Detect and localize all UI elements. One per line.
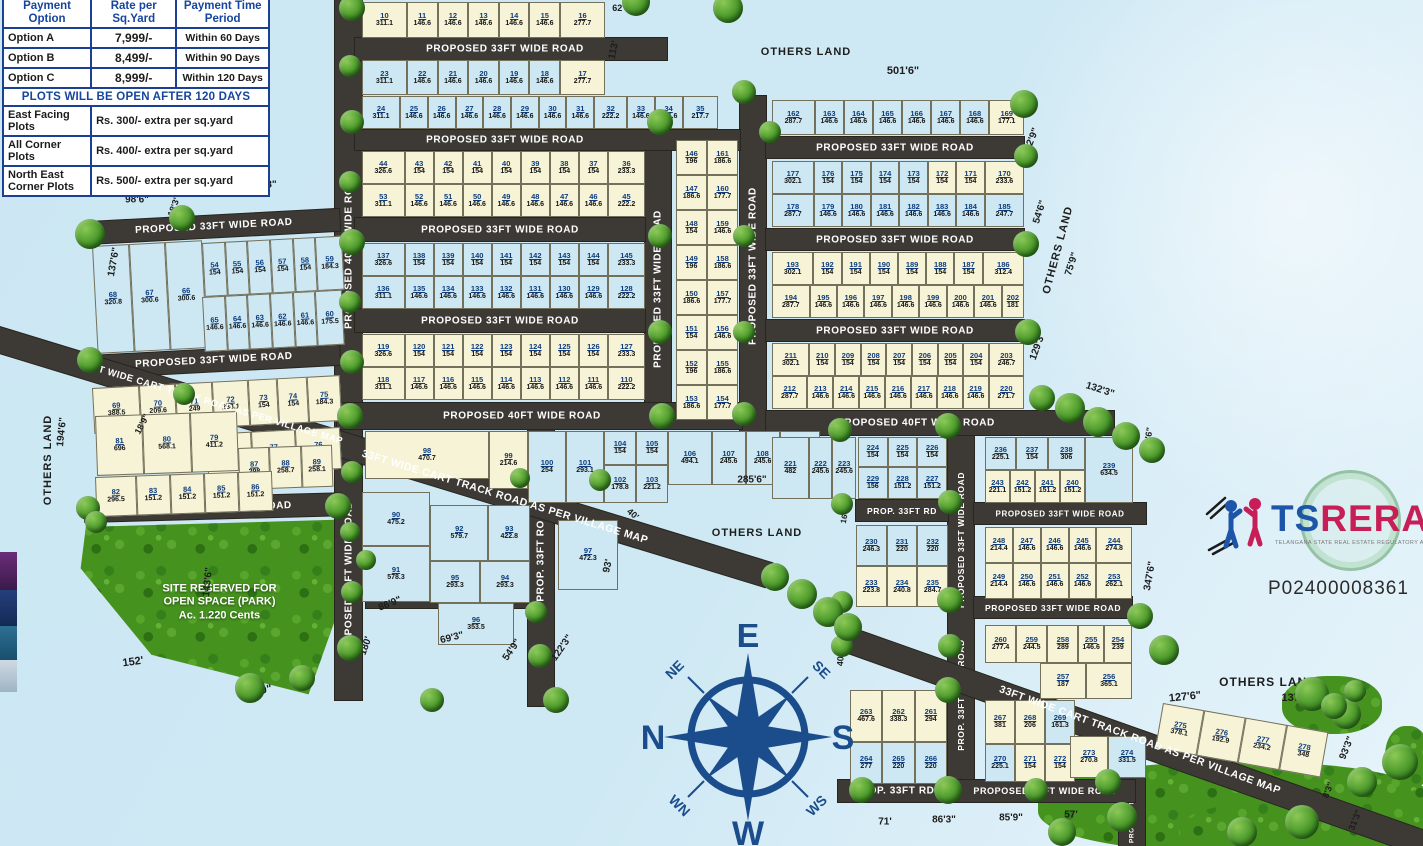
plot-177: 177302.1 bbox=[772, 161, 814, 194]
plot-area: 154 bbox=[413, 260, 425, 268]
plot-area: 244.5 bbox=[1023, 644, 1041, 652]
plot-number: 257 bbox=[1057, 673, 1070, 681]
plot-149: 149196 bbox=[676, 245, 707, 280]
plot-area: 245.6 bbox=[812, 468, 830, 476]
tree-icon bbox=[759, 121, 781, 143]
road-label: PROPOSED 33FT WIDE ROAD bbox=[748, 187, 759, 345]
plot-area: 154 bbox=[413, 168, 425, 176]
plot-number: 203 bbox=[1000, 352, 1013, 360]
tree-icon bbox=[420, 688, 444, 712]
plot-area: 146.6 bbox=[296, 319, 314, 328]
plot-number: 204 bbox=[970, 352, 983, 360]
ts-rera-logo: TSRERA TELANGANA STATE REAL ESTATE REGUL… bbox=[1205, 482, 1423, 582]
plot-area: 146.6 bbox=[889, 393, 907, 401]
plot-118: 118311.1 bbox=[362, 367, 405, 400]
plot-145: 145233.3 bbox=[608, 243, 645, 276]
plot-226: 226154 bbox=[917, 437, 947, 467]
tree-icon bbox=[648, 320, 672, 344]
extra-charge-label: North East Corner Plots bbox=[3, 166, 91, 196]
plot-block: 243221.1242151.2241151.2240151.2 bbox=[985, 470, 1085, 503]
plot-area: 320.8 bbox=[104, 299, 122, 308]
plot-number: 152 bbox=[685, 360, 698, 368]
tree-icon bbox=[1321, 693, 1347, 719]
plot-number: 264 bbox=[860, 755, 873, 763]
plot-area: 287.7 bbox=[784, 211, 802, 219]
plot-area: 146.6 bbox=[714, 333, 732, 341]
plot-number: 243 bbox=[991, 479, 1004, 487]
plot-number: 132 bbox=[500, 285, 513, 293]
plot-area: 146.6 bbox=[410, 201, 428, 209]
plot-157: 157177.7 bbox=[707, 280, 738, 315]
plot-195: 195146.6 bbox=[810, 285, 837, 318]
plot-number: 133 bbox=[471, 285, 484, 293]
plot-area: 154 bbox=[919, 360, 931, 368]
plot-250: 250146.6 bbox=[1013, 563, 1041, 599]
plot-number: 174 bbox=[879, 170, 892, 178]
tree-icon bbox=[1112, 422, 1140, 450]
plot-number: 266 bbox=[925, 755, 938, 763]
plot-area: 151.2 bbox=[1014, 487, 1032, 495]
plot-173: 173154 bbox=[899, 161, 928, 194]
plot-area: 146.6 bbox=[1046, 545, 1064, 553]
plot-block: 270225.1271154272154 bbox=[985, 744, 1075, 782]
plot-area: 146.6 bbox=[488, 113, 506, 121]
plot-number: 17 bbox=[578, 70, 586, 78]
plot-90: 90475.2 bbox=[362, 492, 430, 546]
plot-block: 257187256365.1 bbox=[1040, 663, 1132, 699]
plot-241: 241151.2 bbox=[1035, 470, 1060, 503]
plot-number: 241 bbox=[1041, 479, 1054, 487]
plot-area: 245.6 bbox=[835, 468, 853, 476]
plot-area: 300.6 bbox=[178, 295, 196, 304]
plot-area: 287.7 bbox=[785, 118, 803, 126]
plot-area: 154 bbox=[558, 168, 570, 176]
dimension-label: 194'6" bbox=[55, 417, 69, 447]
plot-number: 47 bbox=[560, 193, 568, 201]
plot-number: 160 bbox=[716, 185, 729, 193]
plot-number: 261 bbox=[925, 708, 938, 716]
plot-209: 209154 bbox=[835, 343, 861, 376]
dimension-label: 71' bbox=[878, 817, 892, 828]
plot-number: 14 bbox=[510, 12, 518, 20]
logo-text: TSRERA bbox=[1271, 498, 1423, 540]
tree-icon bbox=[934, 776, 962, 804]
plot-number: 129 bbox=[587, 285, 600, 293]
plot-140: 140154 bbox=[463, 243, 492, 276]
tree-icon bbox=[337, 635, 363, 661]
plot-area: 225.1 bbox=[991, 763, 1009, 771]
road-label: PROPOSED 40FT WIDE ROAD bbox=[443, 411, 601, 422]
plot-number: 172 bbox=[936, 170, 949, 178]
plot-block: 162287.7163146.6164146.6165146.6166146.6… bbox=[772, 100, 1024, 135]
plot-area: 184.3 bbox=[321, 263, 339, 272]
plot-number: 113 bbox=[529, 376, 541, 384]
plot-area: 146.6 bbox=[869, 302, 887, 310]
plot-58: 58154 bbox=[292, 237, 317, 292]
plot-area: 154 bbox=[842, 360, 854, 368]
plot-area: 154 bbox=[1054, 763, 1066, 771]
plot-block: 92579.793422.8 bbox=[430, 505, 530, 561]
plot-number: 259 bbox=[1025, 636, 1038, 644]
plot-area: 184.3 bbox=[316, 399, 334, 408]
plot-42: 42154 bbox=[434, 151, 463, 184]
plot-area: 146.6 bbox=[206, 324, 224, 333]
plot-48: 48146.6 bbox=[521, 184, 550, 217]
plot-area: 579.7 bbox=[450, 533, 468, 541]
plot-number: 240 bbox=[1066, 479, 1079, 487]
plot-number: 206 bbox=[919, 352, 932, 360]
plot-104: 104154 bbox=[604, 431, 636, 465]
plot-number: 135 bbox=[413, 285, 426, 293]
plot-80: 80568.1 bbox=[142, 413, 191, 475]
plot-area: 302.1 bbox=[784, 269, 802, 277]
plot-area: 247.7 bbox=[996, 211, 1014, 219]
plot-number: 268 bbox=[1024, 714, 1037, 722]
plot-220: 220271.7 bbox=[989, 376, 1024, 409]
plot-area: 289 bbox=[1057, 644, 1069, 652]
plot-number: 26 bbox=[437, 105, 445, 113]
plot-number: 245 bbox=[1076, 537, 1089, 545]
plot-area: 326.6 bbox=[375, 168, 393, 176]
plot-number: 214 bbox=[840, 385, 853, 393]
plot-265: 265220 bbox=[882, 742, 914, 784]
plot-area: 146.6 bbox=[820, 118, 838, 126]
plot-block: 147186.6160177.7 bbox=[676, 175, 738, 210]
plot-area: 245.6 bbox=[720, 458, 738, 466]
plot-area: 146.6 bbox=[915, 393, 933, 401]
plot-256: 256365.1 bbox=[1086, 663, 1132, 699]
plot-56: 56154 bbox=[247, 239, 272, 294]
plot-number: 166 bbox=[910, 110, 923, 118]
tree-icon bbox=[589, 469, 611, 491]
plot-block: 53311.152146.651146.650146.649146.648146… bbox=[362, 184, 645, 217]
plot-number: 13 bbox=[479, 12, 487, 20]
plot-area: 154 bbox=[209, 269, 221, 277]
plot-number: 138 bbox=[413, 252, 426, 260]
plot-44: 44326.6 bbox=[362, 151, 405, 184]
plot-number: 111 bbox=[588, 376, 600, 384]
plot-number: 267 bbox=[994, 714, 1007, 722]
plot-area: 151.2 bbox=[923, 483, 941, 491]
plot-block: 44326.6431544215441154401543915438154371… bbox=[362, 151, 645, 184]
plot-228: 228151.2 bbox=[888, 467, 918, 499]
plot-area: 258.1 bbox=[308, 466, 326, 474]
plot-number: 140 bbox=[471, 252, 484, 260]
road: PROPOSED 33FT WIDE ROAD bbox=[355, 309, 645, 332]
plot-area: 311.1 bbox=[375, 201, 392, 209]
plot-84: 84151.2 bbox=[170, 473, 205, 514]
plot-block: 212287.7213146.6214146.6215146.6216146.6… bbox=[772, 376, 1024, 409]
plot-number: 126 bbox=[587, 343, 600, 351]
tree-icon bbox=[528, 644, 552, 668]
plot-area: 146.6 bbox=[433, 113, 451, 121]
plot-area: 146.6 bbox=[572, 113, 590, 121]
plot-number: 156 bbox=[716, 325, 729, 333]
plot-area: 302.1 bbox=[784, 178, 802, 186]
plot-area: 274.8 bbox=[1105, 545, 1123, 553]
plot-area: 154 bbox=[529, 168, 541, 176]
plot-area: 154 bbox=[500, 168, 512, 176]
extra-charge-value: Rs. 400/- extra per sq.yard bbox=[91, 136, 269, 166]
plot-number: 33 bbox=[637, 105, 645, 113]
plot-number: 97 bbox=[584, 547, 592, 555]
plot-block: 193302.119215419115419015418915418815418… bbox=[772, 252, 1024, 285]
plot-218: 218146.6 bbox=[937, 376, 963, 409]
plot-area: 146.6 bbox=[837, 393, 855, 401]
tree-icon bbox=[1107, 802, 1137, 832]
plot-132: 132146.6 bbox=[492, 276, 521, 309]
plot-number: 83 bbox=[149, 487, 158, 496]
plot-number: 110 bbox=[620, 376, 632, 384]
tree-icon bbox=[169, 205, 195, 231]
tree-icon bbox=[1055, 393, 1085, 423]
plot-16: 16277.7 bbox=[560, 2, 605, 38]
plot-217: 217146.6 bbox=[911, 376, 937, 409]
plot-number: 194 bbox=[785, 294, 798, 302]
plot-number: 177 bbox=[787, 170, 800, 178]
plot-180: 180146.6 bbox=[842, 194, 871, 227]
plot-number: 232 bbox=[926, 538, 939, 546]
plot-block: 233223.8234240.8235284.7 bbox=[856, 566, 948, 607]
plot-52: 52146.6 bbox=[405, 184, 434, 217]
plot-number: 142 bbox=[529, 252, 542, 260]
plot-number: 49 bbox=[502, 193, 510, 201]
plot-area: 154 bbox=[413, 351, 425, 359]
plot-number: 224 bbox=[867, 444, 880, 452]
plot-area: 146.6 bbox=[848, 211, 866, 219]
plot-block: 260277.4259244.5258289255146.6254239 bbox=[985, 625, 1132, 663]
plot-147: 147186.6 bbox=[676, 175, 707, 210]
plot-block: 118311.1117146.6116146.6115146.6114146.6… bbox=[362, 367, 645, 400]
plot-area: 187 bbox=[1057, 681, 1069, 689]
plot-221: 221482 bbox=[772, 437, 809, 499]
plot-area: 154 bbox=[686, 333, 698, 341]
plot-133: 133146.6 bbox=[463, 276, 492, 309]
plot-135: 135146.6 bbox=[405, 276, 434, 309]
tree-icon bbox=[525, 601, 547, 623]
plot-188: 188154 bbox=[926, 252, 954, 285]
plot-area: 154 bbox=[816, 360, 828, 368]
plot-area: 154 bbox=[529, 260, 541, 268]
tree-icon bbox=[543, 687, 569, 713]
plot-number: 141 bbox=[500, 252, 513, 260]
plot-number: 100 bbox=[541, 459, 554, 467]
tree-icon bbox=[649, 403, 675, 429]
plot-202: 202181 bbox=[1002, 285, 1024, 318]
plot-number: 220 bbox=[1000, 385, 1013, 393]
plot-114: 114146.6 bbox=[492, 367, 521, 400]
plot-43: 43154 bbox=[405, 151, 434, 184]
plot-131: 131146.6 bbox=[521, 276, 550, 309]
plot-46: 46146.6 bbox=[579, 184, 608, 217]
plot-119: 119326.6 bbox=[362, 334, 405, 367]
plot-area: 146.6 bbox=[461, 113, 479, 121]
plot-152: 152196 bbox=[676, 350, 707, 385]
plot-area: 146.6 bbox=[819, 211, 837, 219]
plot-270: 270225.1 bbox=[985, 744, 1015, 782]
table-header-payment-option: Payment Option bbox=[3, 0, 91, 28]
plot-area: 151.2 bbox=[894, 483, 912, 491]
plot-246: 246146.6 bbox=[1041, 527, 1069, 563]
plot-115: 115146.6 bbox=[463, 367, 492, 400]
plot-number: 106 bbox=[684, 450, 697, 458]
plot-13: 13146.6 bbox=[468, 2, 499, 38]
plot-85: 85151.2 bbox=[204, 472, 239, 513]
plot-61: 61146.6 bbox=[292, 291, 317, 347]
plot-number: 184 bbox=[964, 203, 977, 211]
plot-54: 54154 bbox=[202, 242, 227, 297]
plot-area: 178.8 bbox=[611, 484, 629, 492]
plot-number: 201 bbox=[982, 294, 995, 302]
road-label: PROPOSED 33FT WIDE ROAD bbox=[135, 217, 293, 236]
plot-area: 221.1 bbox=[989, 487, 1007, 495]
plot-area: 154 bbox=[822, 178, 834, 186]
plot-block: 119326.612015412115412215412315412415412… bbox=[362, 334, 645, 367]
tree-icon bbox=[1013, 231, 1039, 257]
plot-number: 25 bbox=[410, 105, 418, 113]
compass-west: W bbox=[732, 815, 765, 846]
plot-area: 222.2 bbox=[618, 201, 636, 209]
plot-number: 22 bbox=[418, 70, 426, 78]
plot-area: 311.1 bbox=[376, 78, 393, 86]
plot-36: 36233.3 bbox=[608, 151, 645, 184]
plot-area: 154 bbox=[822, 269, 834, 277]
plot-150: 150186.6 bbox=[676, 280, 707, 315]
plot-block: 177302.117615417515417415417315417215417… bbox=[772, 161, 1024, 194]
plot-area: 154 bbox=[588, 351, 600, 359]
tree-icon bbox=[1127, 603, 1153, 629]
plot-area: 146.6 bbox=[497, 293, 515, 301]
plot-number: 190 bbox=[878, 261, 891, 269]
plot-number: 193 bbox=[786, 261, 799, 269]
plot-201: 201146.6 bbox=[974, 285, 1001, 318]
plot-area: 186.6 bbox=[683, 403, 701, 411]
plot-area: 146.6 bbox=[505, 78, 523, 86]
plot-area: 177.7 bbox=[714, 403, 732, 411]
plot-number: 121 bbox=[442, 343, 455, 351]
plot-92: 92579.7 bbox=[430, 505, 488, 561]
plot-number: 46 bbox=[589, 193, 597, 201]
plot-179: 179146.6 bbox=[814, 194, 843, 227]
rate-table-cell: Option C bbox=[3, 68, 91, 88]
plot-number: 254 bbox=[1112, 636, 1125, 644]
plot-205: 205154 bbox=[938, 343, 964, 376]
plot-223: 223245.6 bbox=[832, 437, 856, 499]
rate-table-cell: Within 120 Days bbox=[176, 68, 269, 88]
plot-204: 204154 bbox=[963, 343, 989, 376]
tree-icon bbox=[713, 0, 743, 23]
plot-block: 23311.122146.621146.620146.619146.618146… bbox=[362, 60, 605, 95]
plot-number: 144 bbox=[587, 252, 600, 260]
plot-number: 124 bbox=[529, 343, 542, 351]
plot-area: 146.6 bbox=[413, 20, 431, 28]
tree-icon bbox=[1024, 778, 1048, 802]
plot-number: 235 bbox=[926, 579, 939, 587]
plot-number: 45 bbox=[622, 193, 630, 201]
plot-28: 28146.6 bbox=[483, 96, 511, 129]
plot-number: 179 bbox=[822, 203, 835, 211]
plot-number: 52 bbox=[415, 193, 423, 201]
plot-area: 154 bbox=[878, 269, 890, 277]
plot-172: 172154 bbox=[928, 161, 957, 194]
plot-number: 36 bbox=[622, 160, 630, 168]
plot-170: 170233.6 bbox=[985, 161, 1024, 194]
plot-area: 146.6 bbox=[556, 201, 574, 209]
plot-area: 146.6 bbox=[585, 201, 603, 209]
plot-232: 232220 bbox=[917, 525, 948, 566]
plot-block: 136311.1135146.6134146.6133146.6132146.6… bbox=[362, 276, 645, 309]
plot-number: 40 bbox=[502, 160, 510, 168]
tree-icon bbox=[289, 665, 315, 691]
road: PROP. 33FT RD bbox=[856, 500, 948, 521]
plot-block: 221482222245.6223245.6 bbox=[772, 437, 856, 499]
plot-number: 143 bbox=[558, 252, 571, 260]
plot-area: 568.1 bbox=[158, 443, 176, 451]
plot-164: 164146.6 bbox=[844, 100, 873, 135]
plot-249: 249214.4 bbox=[985, 563, 1013, 599]
tree-icon bbox=[935, 413, 961, 439]
plot-area: 151.2 bbox=[179, 494, 197, 502]
plot-number: 145 bbox=[620, 252, 633, 260]
plot-95: 95293.3 bbox=[430, 561, 480, 603]
tree-icon bbox=[1227, 817, 1257, 846]
plot-area: 154 bbox=[529, 351, 541, 359]
plot-123: 123154 bbox=[492, 334, 521, 367]
plot-number: 148 bbox=[685, 220, 698, 228]
plot-240: 240151.2 bbox=[1060, 470, 1085, 503]
plot-number: 18 bbox=[541, 70, 549, 78]
plot-number: 189 bbox=[906, 261, 919, 269]
plot-block: 82296.583151.284151.285151.286151.2 bbox=[95, 471, 273, 517]
plot-area: 154 bbox=[1024, 763, 1036, 771]
plot-area: 154 bbox=[471, 351, 483, 359]
plot-number: 117 bbox=[413, 376, 425, 384]
plot-219: 219146.6 bbox=[963, 376, 989, 409]
road-label: PROPOSED 33FT WIDE ROAD bbox=[816, 142, 974, 153]
tree-icon bbox=[732, 402, 756, 426]
plot-number: 24 bbox=[377, 105, 385, 113]
tree-icon bbox=[1083, 407, 1113, 437]
plot-area: 146.6 bbox=[468, 384, 486, 392]
plot-number: 98 bbox=[423, 447, 431, 455]
plot-number: 200 bbox=[954, 294, 967, 302]
plot-number: 94 bbox=[501, 574, 509, 582]
plot-number: 239 bbox=[1103, 462, 1116, 470]
plot-41: 41154 bbox=[463, 151, 492, 184]
plot-number: 218 bbox=[943, 385, 956, 393]
plot-number: 228 bbox=[896, 475, 909, 483]
plot-area: 192.9 bbox=[1211, 735, 1230, 746]
plot-area: 482 bbox=[784, 468, 796, 476]
plot-block: 224154225154226154 bbox=[858, 437, 947, 467]
plot-area: 175.5 bbox=[321, 318, 339, 327]
plot-number: 250 bbox=[1021, 573, 1034, 581]
plot-number: 139 bbox=[442, 252, 455, 260]
plot-area: 311.1 bbox=[376, 20, 393, 28]
plot-block: 230246.3231220232220 bbox=[856, 525, 948, 566]
plot-12: 12146.6 bbox=[438, 2, 469, 38]
plot-area: 271.7 bbox=[997, 393, 1015, 401]
plot-number: 207 bbox=[893, 352, 906, 360]
plot-area: 294 bbox=[925, 716, 937, 724]
plot-number: 223 bbox=[838, 460, 851, 468]
plot-185: 185247.7 bbox=[985, 194, 1024, 227]
rate-table-cell: 8,499/- bbox=[91, 48, 176, 68]
plot-area: 146.6 bbox=[850, 118, 868, 126]
plot-area: 146.6 bbox=[468, 201, 486, 209]
plot-area: 151.2 bbox=[247, 491, 265, 499]
plot-block: 146196161186.6 bbox=[676, 140, 738, 175]
